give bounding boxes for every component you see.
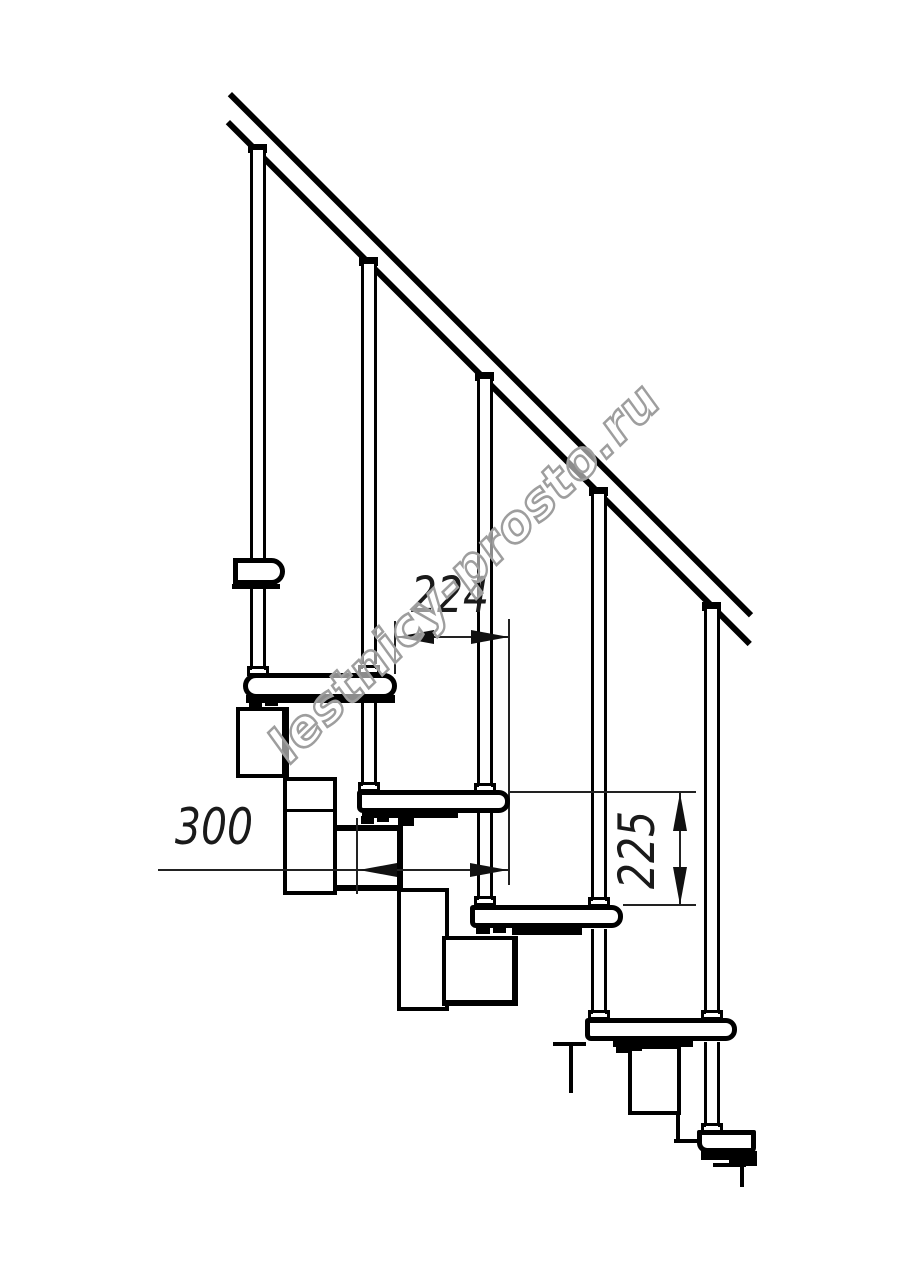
baluster-flange	[474, 896, 496, 906]
upper-floor-bracket-lip	[232, 584, 280, 589]
mount-notch	[377, 816, 389, 822]
baluster-flange	[701, 1010, 723, 1020]
dim-225-ext-top	[510, 791, 696, 793]
upper-floor-bracket	[233, 558, 285, 585]
baluster-5-upper	[704, 609, 720, 1012]
tread-3-underside	[512, 926, 582, 935]
dim-225-arrow-down	[673, 867, 687, 905]
mount-notch	[265, 700, 278, 706]
mount-notch	[616, 1045, 629, 1053]
dim-300-arrow-left	[359, 863, 397, 877]
mount-notch	[493, 925, 506, 933]
staircase-technical-drawing: 224 300 225 lestnicy-prosto.ru	[0, 0, 914, 1280]
dim-300-line	[158, 869, 508, 871]
dim-shared-ext-right	[508, 619, 510, 885]
mount-notch	[476, 923, 490, 934]
baluster-flange	[474, 783, 496, 793]
riser-module-1	[283, 777, 337, 895]
baluster-1-lower	[250, 586, 266, 668]
baluster-flange	[588, 897, 610, 907]
mount-notch	[249, 701, 262, 710]
dim-224-arrow-right	[471, 630, 509, 644]
mount-notch	[361, 816, 374, 824]
support-module-d	[628, 1045, 681, 1115]
baluster-2-upper	[361, 264, 377, 664]
tread-4	[585, 1018, 737, 1041]
module-link-vertical	[569, 1044, 573, 1093]
baluster-5-lower	[704, 1042, 720, 1125]
riser-module-1-seam	[287, 809, 333, 812]
watermark-text: lestnicy-prosto.ru	[237, 344, 693, 800]
support-module-c	[442, 936, 518, 1006]
mount-notch	[398, 818, 414, 826]
dim-300-ext-left	[356, 818, 358, 894]
baluster-4-upper	[591, 494, 607, 898]
dim-300-arrow-right	[470, 863, 508, 877]
baluster-flange	[588, 1010, 610, 1020]
baluster-flange	[247, 666, 269, 676]
dim-225-arrow-up	[673, 793, 687, 831]
mount-notch	[632, 1045, 642, 1051]
tread-5-step-drop	[740, 1166, 744, 1187]
baluster-1-upper	[250, 150, 266, 558]
dim-300-label: 300	[173, 802, 255, 852]
baluster-flange	[701, 1123, 723, 1133]
support-module-b	[333, 825, 403, 891]
tread-5	[697, 1130, 756, 1153]
baluster-4-lower	[591, 929, 607, 1012]
dim-225-label: 225	[612, 811, 664, 890]
baluster-flange	[358, 782, 380, 792]
baluster-3-lower	[477, 813, 493, 897]
